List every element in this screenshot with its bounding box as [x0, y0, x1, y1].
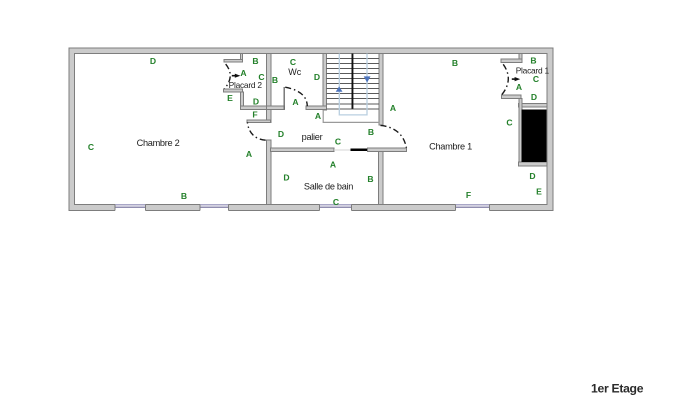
svg-text:A: A — [330, 160, 336, 170]
svg-text:F: F — [252, 110, 257, 120]
svg-text:C: C — [506, 118, 512, 128]
svg-text:D: D — [531, 92, 537, 102]
svg-text:E: E — [227, 93, 233, 103]
svg-text:F: F — [466, 190, 471, 200]
svg-text:D: D — [314, 72, 320, 82]
svg-text:C: C — [533, 74, 539, 84]
svg-text:Wc: Wc — [288, 67, 301, 77]
svg-text:A: A — [292, 97, 298, 107]
svg-text:A: A — [516, 82, 522, 92]
svg-text:A: A — [240, 68, 246, 78]
svg-text:palier: palier — [302, 132, 323, 142]
svg-text:D: D — [150, 56, 156, 66]
svg-text:A: A — [315, 111, 321, 121]
svg-text:A: A — [390, 103, 396, 113]
svg-text:C: C — [290, 57, 296, 67]
svg-text:C: C — [335, 137, 341, 147]
svg-text:D: D — [283, 173, 289, 183]
svg-text:B: B — [452, 58, 458, 68]
svg-text:B: B — [530, 56, 536, 66]
svg-text:E: E — [536, 187, 542, 197]
svg-text:B: B — [252, 56, 258, 66]
svg-text:B: B — [367, 174, 373, 184]
svg-text:Salle de bain: Salle de bain — [304, 182, 353, 192]
svg-text:1er Etage: 1er Etage — [591, 382, 644, 396]
svg-text:D: D — [529, 171, 535, 181]
svg-text:Chambre 2: Chambre 2 — [137, 138, 180, 148]
svg-text:C: C — [333, 197, 339, 207]
svg-text:B: B — [272, 75, 278, 85]
svg-text:A: A — [246, 149, 252, 159]
svg-text:B: B — [368, 127, 374, 137]
svg-text:C: C — [258, 72, 264, 82]
svg-text:D: D — [278, 129, 284, 139]
svg-text:B: B — [181, 191, 187, 201]
svg-text:D: D — [253, 97, 259, 107]
svg-text:Placard 2: Placard 2 — [229, 80, 263, 90]
svg-text:C: C — [88, 142, 94, 152]
svg-text:Chambre 1: Chambre 1 — [429, 142, 472, 152]
